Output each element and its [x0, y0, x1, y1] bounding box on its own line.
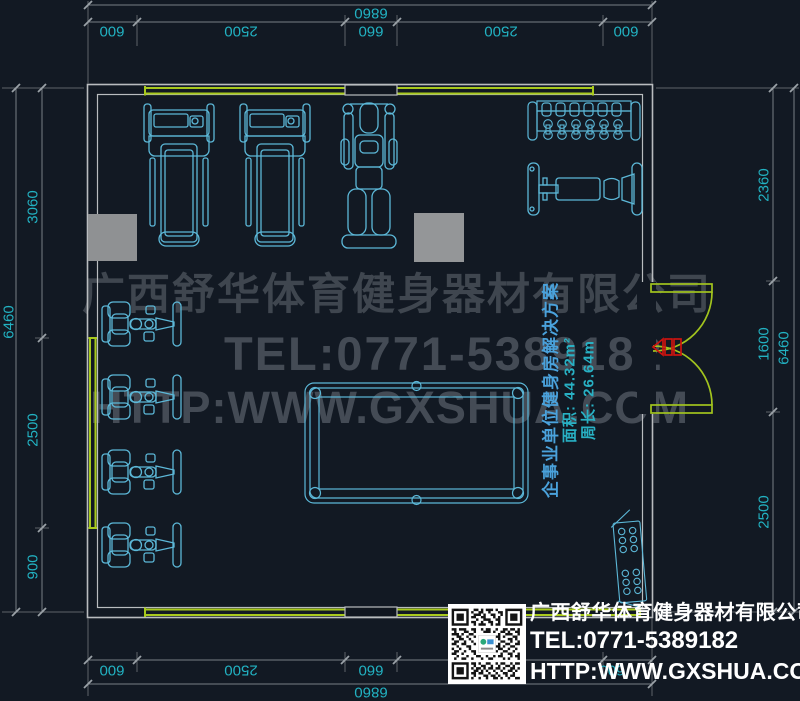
- qr-center-logo: [478, 635, 495, 652]
- dim-right-total: 6460: [776, 331, 793, 364]
- dim-right-seg-1: 2360: [756, 168, 773, 201]
- plate-rack: [610, 509, 647, 609]
- solution-note-title: 企事业单位健身房解决方案: [542, 282, 561, 498]
- dim-left-seg-3: 900: [25, 554, 42, 579]
- treadmill-1: [144, 104, 214, 246]
- wall-pier-bottom: [345, 607, 397, 617]
- dim-top-seg-5: 600: [613, 23, 638, 40]
- column-center: [414, 213, 464, 262]
- strength-machine-4: [102, 523, 181, 567]
- dim-left-total: 6460: [1, 305, 18, 338]
- strength-machine-2: [102, 375, 181, 419]
- dim-bottom-seg-2: 2500: [224, 662, 257, 679]
- dim-bottom-total: 6860: [354, 684, 387, 701]
- floor-plan-canvas: 广西舒华体育健身器材有限公司 TEL:0771-5389182 HTTP:WWW…: [0, 0, 800, 701]
- dim-top-seg-3: 660: [358, 23, 383, 40]
- dim-top-seg-2: 2500: [224, 23, 257, 40]
- dim-bottom-seg-3: 660: [358, 662, 383, 679]
- solution-note-area: 面积: 44.32m²: [561, 282, 580, 498]
- dim-right-seg-3: 2500: [756, 495, 773, 528]
- dimension-lines: [16, 5, 794, 684]
- column-left: [88, 214, 137, 261]
- strength-machine-1: [102, 302, 181, 346]
- dumbbell-rack: [528, 101, 640, 140]
- flat-bench: [528, 163, 642, 215]
- dim-left-seg-2: 2500: [25, 413, 42, 446]
- multi-station-machine: [341, 103, 397, 248]
- wall-pier-top: [345, 85, 397, 95]
- dim-top-seg-4: 2500: [484, 23, 517, 40]
- footer-website: HTTP:WWW.GXSHUA.COM: [530, 658, 800, 685]
- strength-machine-3: [102, 450, 181, 494]
- extension-lines: [2, 1, 799, 696]
- treadmill-2: [240, 104, 310, 246]
- dim-top-seg-1: 600: [99, 23, 124, 40]
- solution-note-perimeter: 周长: 26.64m: [580, 282, 599, 498]
- footer-company: 广西舒华体育健身器材有限公司: [530, 596, 800, 625]
- solution-note: 企事业单位健身房解决方案 面积: 44.32m² 周长: 26.64m: [542, 282, 599, 498]
- dim-top-total: 6860: [354, 5, 387, 22]
- qr-code: [448, 604, 526, 684]
- dim-bottom-seg-1: 600: [99, 662, 124, 679]
- dim-right-seg-2: 1600: [756, 327, 773, 360]
- billiard-table: [305, 382, 528, 505]
- dim-left-seg-1: 3060: [25, 190, 42, 223]
- footer-tel: TEL:0771-5389182: [530, 627, 738, 655]
